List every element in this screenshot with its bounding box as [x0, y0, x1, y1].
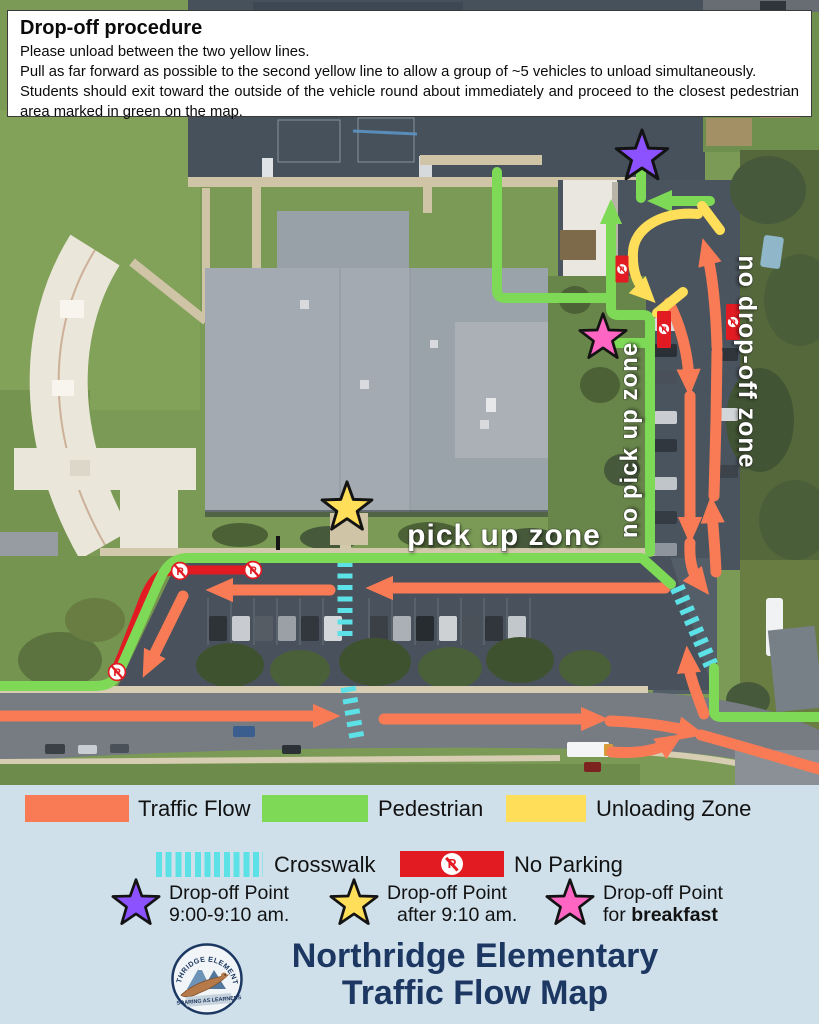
- traffic-flow-label: Traffic Flow: [138, 795, 250, 822]
- poster-title: Northridge Elementary Traffic Flow Map: [250, 938, 700, 1011]
- dropoff-legend-yellow: Drop-off Point after 9:10 am.: [327, 877, 517, 931]
- procedure-box: Drop-off procedure Please unload between…: [7, 10, 812, 117]
- purple-star-icon: [109, 877, 163, 931]
- dropoff-legend-purple: Drop-off Point 9:00-9:10 am.: [109, 877, 289, 931]
- traffic-flow-swatch: [25, 795, 129, 822]
- legend: Traffic Flow Pedestrian Unloading Zone C…: [0, 785, 819, 940]
- pink-star-icon: [543, 877, 597, 931]
- poster-title-line1: Northridge Elementary: [250, 938, 700, 975]
- no-parking-icon: P: [441, 853, 463, 875]
- dropoff-legend-pink: Drop-off Point for breakfast: [543, 877, 723, 931]
- school-logo: NORTHRIDGE ELEMENTARY SOARING AS LEARNER…: [170, 942, 244, 1016]
- procedure-line-3: Students should exit toward the outside …: [20, 82, 799, 122]
- no-parking-swatch: P: [400, 851, 504, 877]
- no-parking-label: No Parking: [514, 851, 623, 878]
- procedure-title: Drop-off procedure: [20, 16, 799, 40]
- traffic-arrow: [714, 352, 717, 496]
- crosswalk-swatch: [156, 852, 263, 877]
- label-no-pick-up-zone: no pick up zone: [616, 342, 643, 538]
- poster-title-line2: Traffic Flow Map: [250, 975, 700, 1011]
- traffic-flow-poster: P: [0, 0, 819, 1024]
- dropoff-yellow-line1: Drop-off Point: [387, 882, 517, 904]
- crosswalk-label: Crosswalk: [274, 851, 375, 878]
- pedestrian-label: Pedestrian: [378, 795, 483, 822]
- traffic-arrow: [712, 512, 716, 572]
- dropoff-yellow-line2: after 9:10 am.: [387, 904, 517, 926]
- dropoff-pink-line2: for breakfast: [603, 904, 723, 926]
- footer: NORTHRIDGE ELEMENTARY SOARING AS LEARNER…: [0, 936, 819, 1024]
- procedure-line-1: Please unload between the two yellow lin…: [20, 42, 799, 62]
- procedure-line-2: Pull as far forward as possible to the s…: [20, 62, 799, 82]
- yellow-star-icon: [327, 877, 381, 931]
- unloading-zone-label: Unloading Zone: [596, 795, 751, 822]
- label-no-drop-off-zone: no drop-off zone: [733, 255, 761, 468]
- unloading-zone-swatch: [506, 795, 586, 822]
- dropoff-purple-line1: Drop-off Point: [169, 882, 289, 904]
- dropoff-purple-line2: 9:00-9:10 am.: [169, 904, 289, 926]
- dropoff-pink-line1: Drop-off Point: [603, 882, 723, 904]
- pedestrian-swatch: [262, 795, 368, 822]
- label-pick-up-zone: pick up zone: [407, 519, 601, 552]
